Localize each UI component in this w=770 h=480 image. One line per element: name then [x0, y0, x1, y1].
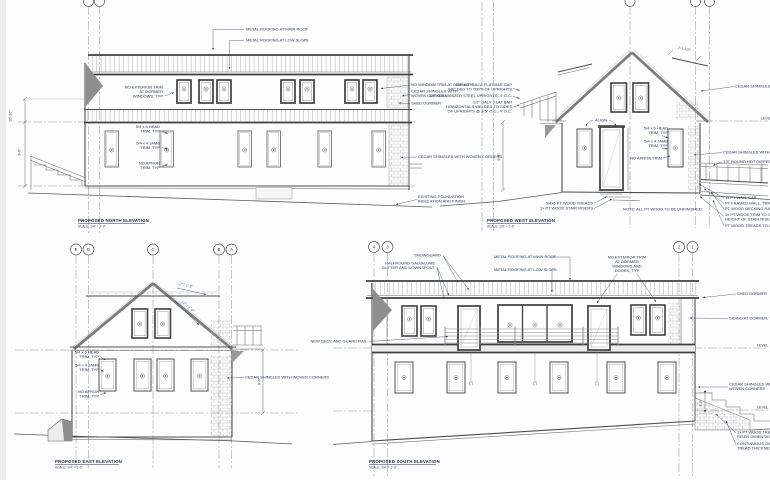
label-wall-cap: 1x PT WALL CAP — [725, 195, 757, 200]
bulkhead — [48, 419, 72, 441]
window — [105, 131, 119, 167]
window — [318, 131, 332, 167]
window — [395, 362, 413, 393]
grid-label: E — [75, 247, 78, 252]
south-title-block: PROPOSED SOUTH ELEVATION SCALE: 1/4" = 1… — [369, 459, 440, 470]
window — [372, 131, 386, 167]
label-metal-roofing-low: METAL ROOFING AT LOW SLOPE — [246, 38, 309, 43]
window — [607, 362, 625, 393]
window — [611, 83, 627, 112]
door — [458, 306, 480, 350]
window — [155, 309, 171, 338]
svg-text:TRIM, TYP: TRIM, TYP — [648, 130, 668, 135]
label-cedar-lower: CEDAR SHINGLES WITH WOVEN CORNERS — [723, 150, 770, 155]
label-decking-ramp: PT WOOD DECKING RAMP BEYOND — [725, 206, 770, 211]
north-title-block: PROPOSED NORTH ELEVATION SCALE: 1/4" = 1… — [78, 218, 149, 229]
elevations-drawing: 20'-10" 9'-6" METAL ROOFING AT MAIN ROOF… — [0, 0, 770, 480]
svg-text:TRIM, TYP: TRIM, TYP — [79, 367, 99, 372]
window — [157, 359, 174, 391]
grid-bubble — [84, 0, 94, 7]
window — [447, 362, 465, 393]
window — [363, 80, 377, 103]
elevation-title-east: PROPOSED EAST ELEVATION — [55, 459, 122, 464]
stair-railing-left — [520, 92, 562, 138]
svg-text:DOORS, TYP: DOORS, TYP — [615, 268, 640, 273]
label-new-deck: NEW DECK AND GUARD RAIL — [311, 339, 368, 344]
label-treads-continue: PT WOOD TREADS TO CONTINUE — [725, 223, 770, 228]
label-siding-dormer: SIDING AT DORMER, TBD — [729, 316, 770, 321]
label-cedar-upper: CEDAR SHINGLES WITH WOVEN CORNERS — [735, 84, 770, 89]
label-metal-roofing-main: METAL ROOFING AT MAIN ROOF — [246, 27, 309, 32]
west-title-block: PROPOSED WEST ELEVATION SCALE: 1/4" = 1'… — [487, 218, 555, 229]
grid-label: D — [87, 247, 90, 252]
svg-text:TRIM, TYP: TRIM, TYP — [79, 394, 99, 399]
elevation-scale-south: SCALE: 1/4" = 1'-0" — [369, 466, 397, 470]
label-metal-main-south: METAL ROOFING AT MAIN ROOF — [494, 254, 557, 259]
dimension-left: 20'-10" 9'-6" — [9, 97, 93, 188]
window — [134, 359, 151, 391]
elevation-title-south: PROPOSED SOUTH ELEVATION — [369, 459, 440, 464]
window — [650, 305, 665, 335]
label-shed-dormer-south: SHED DORMER — [737, 291, 767, 296]
label-framed-wall: PT FRAMED WALL, TRIMED WITH — [725, 201, 770, 206]
window — [267, 131, 281, 167]
svg-text:GUTTER AND DOWNSPOUT: GUTTER AND DOWNSPOUT — [382, 265, 436, 270]
elevation-scale-north: SCALE: 1/4" = 1'-0" — [78, 225, 106, 229]
grid-bubble — [625, 0, 635, 7]
window — [191, 359, 208, 391]
label-pt-risers: 1x PT WOOD STAIR RISERS — [540, 206, 593, 211]
elevation-scale-east: SCALE: 1/4" = 1'-0" — [55, 466, 83, 470]
west-elevation: 9'-6" 2'-1 1/2" 3/4" x 3" GALV. FLAT BAR… — [429, 0, 770, 231]
label-rail-uprights: 3/4" GALVANIZED STEEL UPRIGHTS, 4' O.C. — [429, 93, 512, 98]
stair-left — [30, 156, 86, 190]
grid-label: B — [218, 247, 221, 252]
svg-text:TRIM, TYP: TRIM, TYP — [79, 354, 99, 359]
dim-floor: 9'-6" — [18, 148, 22, 156]
window — [631, 305, 646, 335]
elevation-title-north: PROPOSED NORTH ELEVATION — [78, 218, 149, 223]
window — [99, 359, 116, 391]
grid-label: A — [230, 247, 233, 252]
grid-lines-south: 4 3 2 1 — [369, 242, 699, 477]
svg-text:TRIM, TYP: TRIM, TYP — [140, 129, 160, 134]
window — [402, 306, 417, 336]
window — [550, 362, 568, 393]
label-level-lower: LEVEL — [757, 406, 768, 410]
svg-text:TRIM, TYP: TRIM, TYP — [140, 165, 160, 170]
dim-stair: 3'-0" — [699, 399, 703, 407]
entry-door — [598, 125, 625, 190]
west-building — [440, 50, 770, 206]
grid-label: C — [151, 247, 154, 252]
dim-floor-west: 9'-6" — [497, 153, 501, 161]
window — [421, 306, 436, 336]
label-snowguard: SNOWGUARD — [414, 253, 441, 258]
svg-text:OF UPRIGHTS @ 3.5" O.C., 4' O.: OF UPRIGHTS @ 3.5" O.C., 4' O.C. — [448, 109, 512, 114]
elevation-scale-west: SCALE: 1/4" = 1'-0" — [487, 225, 515, 229]
window — [132, 309, 148, 338]
window — [498, 362, 516, 393]
north-elevation: 20'-10" 9'-6" METAL ROOFING AT MAIN ROOF… — [9, 0, 503, 233]
label-note-unfinished: NOTE: ALL PT WOOD TO BE UNFINISHED — [623, 207, 702, 212]
label-shed-dormer: SHED DORMER — [411, 101, 441, 106]
dim-overhang: 2'-1 1/2" — [677, 46, 691, 53]
window — [217, 80, 231, 103]
dim-overall: 20'-10" — [9, 110, 13, 122]
elevation-title-west: PROPOSED WEST ELEVATION — [487, 218, 555, 223]
east-title-block: PROPOSED EAST ELEVATION SCALE: 1/4" = 1'… — [55, 459, 122, 470]
south-building — [333, 281, 770, 445]
grid-bubble — [705, 0, 715, 7]
svg-text:WINDOWS, TYP: WINDOWS, TYP — [133, 94, 163, 99]
label-cedar-shingles-wall: CEDAR SHINGLES WITH WOVEN CORNERS — [418, 154, 502, 159]
east-elevation: E D C B A — [14, 244, 329, 470]
window — [668, 129, 683, 167]
window — [238, 131, 252, 167]
downspouts — [470, 353, 599, 385]
sliding-glass-doors — [498, 305, 572, 342]
window — [658, 362, 676, 393]
label-align: ALIGN — [595, 118, 607, 123]
south-elevation: 4 3 2 1 — [311, 242, 770, 477]
drawing-sheet: 20'-10" 9'-6" METAL ROOFING AT MAIN ROOF… — [0, 0, 770, 480]
svg-text:INSULATION AND FINISH: INSULATION AND FINISH — [418, 199, 465, 204]
window — [281, 80, 295, 103]
svg-text:TRIM, TYP: TRIM, TYP — [648, 143, 668, 148]
svg-text:RISER DIMENSION TBD: RISER DIMENSION TBD — [737, 434, 770, 439]
label-metal-low-south: METAL ROOFING AT LOW SLOPE — [494, 267, 557, 272]
svg-text:TREAD THICKNESS: TREAD THICKNESS — [737, 446, 770, 451]
window — [577, 129, 592, 167]
sheet-edge — [0, 0, 6, 480]
east-dimensions: 9'-6" — [258, 348, 266, 415]
grid-bubble — [95, 0, 105, 7]
label-level: LEVEL — [761, 117, 770, 121]
label-no-apron-west: NO APRON TRIM — [630, 156, 662, 161]
window — [199, 80, 213, 103]
label-handrail: 1.5" ROUND HOT DIPPED GALV. — [723, 159, 770, 164]
window — [345, 80, 359, 103]
slope-low: 2" / 1'-0" — [178, 282, 194, 289]
exterior-stairs — [695, 393, 770, 430]
grid-bubble — [691, 0, 701, 7]
deck-railing-right — [232, 326, 263, 362]
door — [588, 306, 610, 350]
window — [177, 80, 191, 103]
svg-text:WOVEN CORNERS: WOVEN CORNERS — [729, 386, 766, 391]
svg-text:TRIM, TYP: TRIM, TYP — [140, 145, 160, 150]
window — [633, 83, 649, 112]
label-level-upper: LEVEL — [757, 344, 768, 348]
window — [300, 80, 314, 103]
svg-text:HEIGHT OF STAIR RISER: HEIGHT OF STAIR RISER — [725, 217, 770, 222]
svg-text:WELDED TO TOPS OF UPRIGHTS: WELDED TO TOPS OF UPRIGHTS — [448, 87, 512, 92]
label-cedar-east: CEDAR SHINGLES WITH WOVEN CORNERS — [245, 375, 329, 380]
